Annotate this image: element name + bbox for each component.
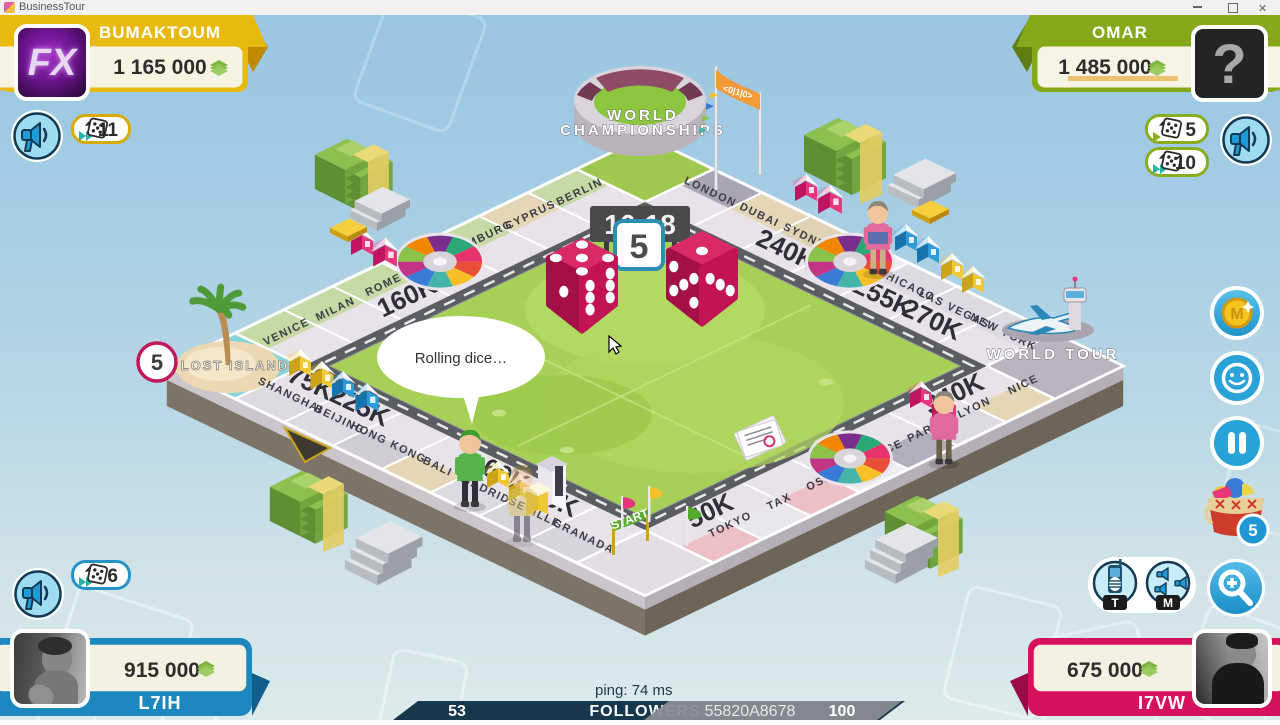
svg-text:5: 5 — [1185, 120, 1196, 141]
svg-text:BUMAKTOUM: BUMAKTOUM — [99, 23, 221, 42]
svg-text:675 000: 675 000 — [1067, 659, 1143, 682]
svg-text:1 165 000: 1 165 000 — [113, 56, 206, 79]
svg-text:100: 100 — [829, 703, 856, 720]
svg-text:T: T — [1111, 596, 1119, 610]
svg-text:OMAR: OMAR — [1092, 23, 1148, 42]
svg-text:53: 53 — [448, 703, 466, 720]
svg-text:5: 5 — [1248, 521, 1257, 540]
svg-text:55820A8678: 55820A8678 — [705, 703, 796, 720]
svg-text:11: 11 — [98, 120, 119, 141]
svg-text:1 485 000: 1 485 000 — [1058, 56, 1151, 79]
svg-text:10: 10 — [1175, 153, 1196, 174]
svg-text:I7VW: I7VW — [1138, 693, 1186, 713]
svg-text:5: 5 — [151, 350, 163, 375]
svg-text:5: 5 — [630, 228, 649, 266]
svg-text:WORLD TOUR: WORLD TOUR — [986, 346, 1119, 363]
svg-text:LOST ISLAND: LOST ISLAND — [181, 358, 290, 373]
svg-text:L7IH: L7IH — [138, 693, 181, 713]
svg-text:M: M — [1163, 596, 1173, 610]
svg-text:M: M — [1230, 306, 1243, 323]
svg-text:6: 6 — [107, 566, 118, 587]
svg-text:915 000: 915 000 — [124, 659, 200, 682]
svg-text:Rolling dice…: Rolling dice… — [415, 350, 508, 367]
